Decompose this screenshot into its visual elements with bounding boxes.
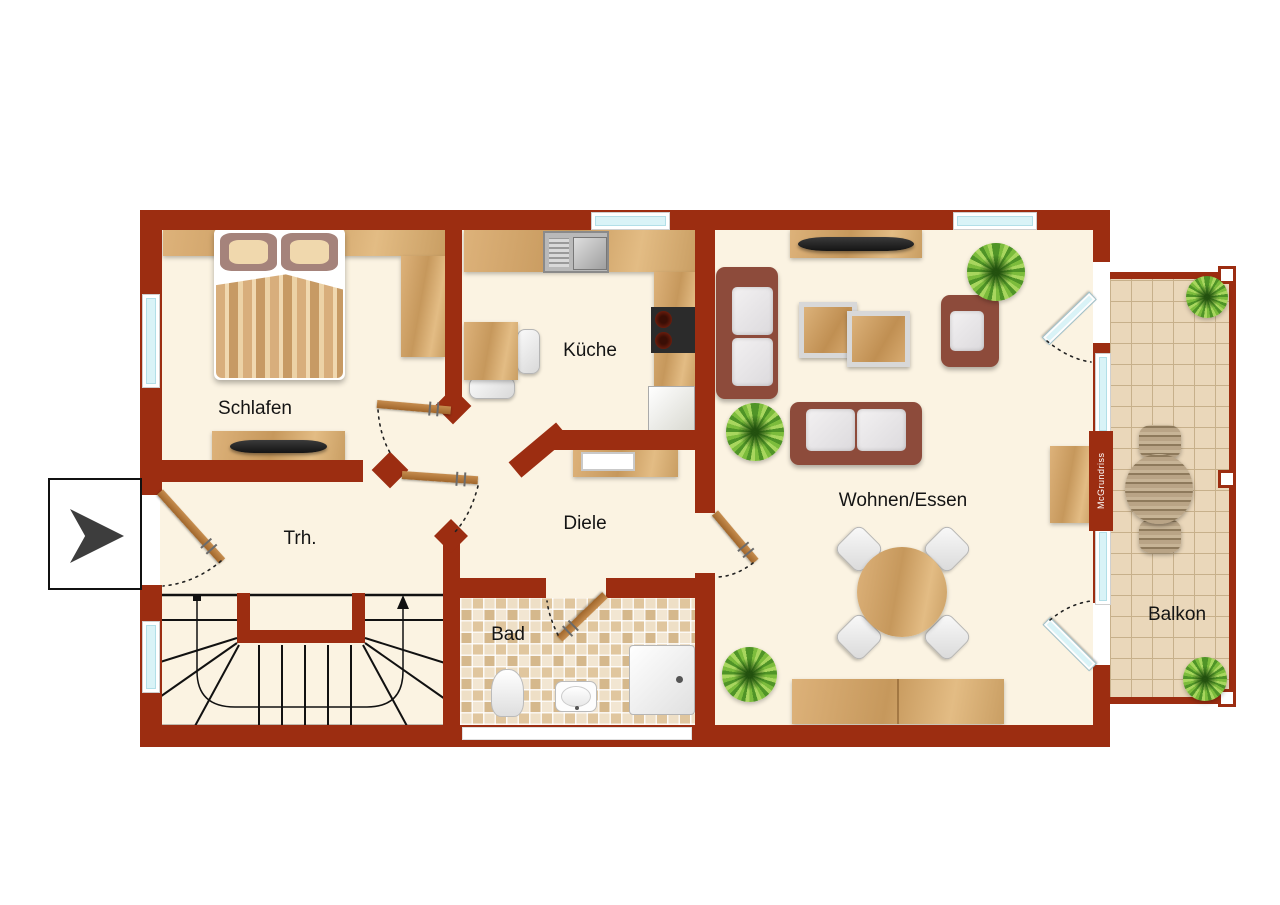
entrance-marker-box (48, 478, 142, 590)
window-wohnen-north (953, 212, 1037, 230)
pillow (220, 233, 277, 271)
window-trh (142, 621, 160, 693)
kitchen-tall-cabinet (648, 386, 695, 434)
coffee-table (847, 311, 910, 367)
wardrobe-side (401, 256, 445, 357)
wall-desk (1050, 446, 1093, 523)
balcony-railing-right (1229, 272, 1236, 704)
loveseat (790, 402, 922, 465)
room-label-kueche: Küche (563, 340, 617, 362)
entrance-arrow-icon (70, 509, 124, 563)
plant (722, 647, 777, 702)
burner (655, 311, 672, 328)
outer-wall-right (1093, 665, 1110, 747)
stair-walk-line (197, 598, 403, 707)
window-wohnen-east-lower (1095, 528, 1111, 605)
plant (1183, 657, 1227, 701)
window-kueche (591, 212, 670, 230)
cooktop (651, 307, 697, 353)
winder-staircase (155, 593, 447, 729)
wall-schlafen-south (140, 460, 363, 482)
room-label-schlafen: Schlafen (218, 398, 292, 420)
wall-schlafen-east (445, 230, 462, 412)
room-label-wohnen-essen: Wohnen/Essen (839, 490, 968, 512)
balcony-chair (1139, 519, 1181, 553)
plant (1186, 276, 1228, 318)
room-label-balkon: Balkon (1148, 604, 1206, 626)
shower (629, 645, 695, 715)
watermark-mcgrundriss: McGrundriss (1089, 431, 1113, 531)
wall-bad-north (443, 578, 546, 598)
tv-icon (798, 237, 914, 251)
toilet (491, 669, 524, 717)
wall-wohnen-west-upper (695, 230, 715, 513)
kitchen-chair (517, 329, 540, 374)
plant (967, 243, 1025, 301)
stair-direction-arrow (397, 595, 409, 609)
wall-wohnen-west-lower (695, 573, 715, 727)
sofa-two-seat (716, 267, 778, 399)
window-wohnen-east-upper (1095, 353, 1111, 435)
sink-basin (573, 237, 607, 270)
wall-kueche-south (552, 430, 697, 450)
window-schlafen (142, 294, 160, 388)
duvet (216, 270, 343, 378)
desk-chair (581, 452, 635, 471)
window-bad-frosted (462, 727, 692, 740)
living-sideboard (792, 679, 1004, 724)
room-label-bad: Bad (491, 624, 525, 646)
kitchen-sink (543, 231, 609, 273)
round-dining-table (857, 547, 947, 637)
tv-icon (230, 440, 327, 453)
shower-drain (676, 676, 683, 683)
room-label-trh: Trh. (283, 528, 316, 550)
room-label-diele: Diele (563, 513, 606, 535)
armchair (941, 295, 999, 367)
wall-trh-east (443, 530, 460, 727)
washbasin (555, 681, 597, 712)
kitchen-chair (469, 377, 515, 399)
plant (726, 403, 784, 461)
burner (655, 332, 672, 349)
double-bed (214, 228, 345, 380)
floor-plan-canvas: Schlafen Küche Diele Trh. Bad Wohnen/Ess… (0, 0, 1280, 905)
pillow (281, 233, 338, 271)
outer-wall-right (1093, 210, 1110, 262)
balcony-table (1125, 454, 1193, 524)
railing-post (1218, 470, 1236, 488)
kitchen-table (464, 322, 518, 380)
sink-drainer (549, 238, 569, 267)
